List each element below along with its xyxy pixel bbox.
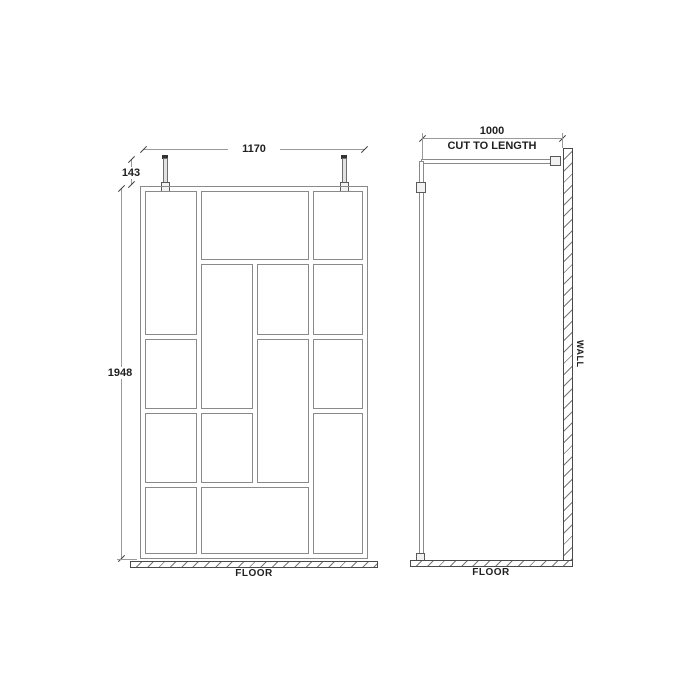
side-depth-dimension-label: 1000 (462, 125, 522, 137)
front-height-dimension-label: 1948 (99, 367, 141, 379)
front-floor-hatch (130, 561, 378, 568)
front-floor-label: FLOOR (214, 568, 294, 579)
side-floor-hatch (410, 560, 573, 567)
side-floor-label: FLOOR (451, 567, 531, 578)
wall-label: WALL (575, 340, 585, 368)
right-post-shaft (342, 158, 347, 184)
side-dimension-extension-left (422, 133, 423, 159)
side-depth-dimension-line (422, 138, 563, 139)
wall-hatch (563, 148, 573, 567)
glass-clamp (416, 182, 426, 193)
front-height-extension-line (117, 559, 137, 560)
shower-screen-technical-drawing: 1170 143 1948 FLOOR 1000 CUT TO LENGT (0, 0, 700, 700)
front-width-dimension-label: 1170 (228, 143, 280, 155)
support-arm (421, 159, 557, 164)
wall-bracket (550, 156, 561, 166)
cut-to-length-note: CUT TO LENGTH (437, 140, 547, 152)
glass-panel-edge (419, 161, 424, 558)
bracket-height-dimension-label: 143 (117, 167, 145, 179)
left-post-shaft (163, 158, 168, 184)
screen-outer-frame (140, 186, 368, 559)
side-dimension-extension-right (562, 133, 563, 148)
